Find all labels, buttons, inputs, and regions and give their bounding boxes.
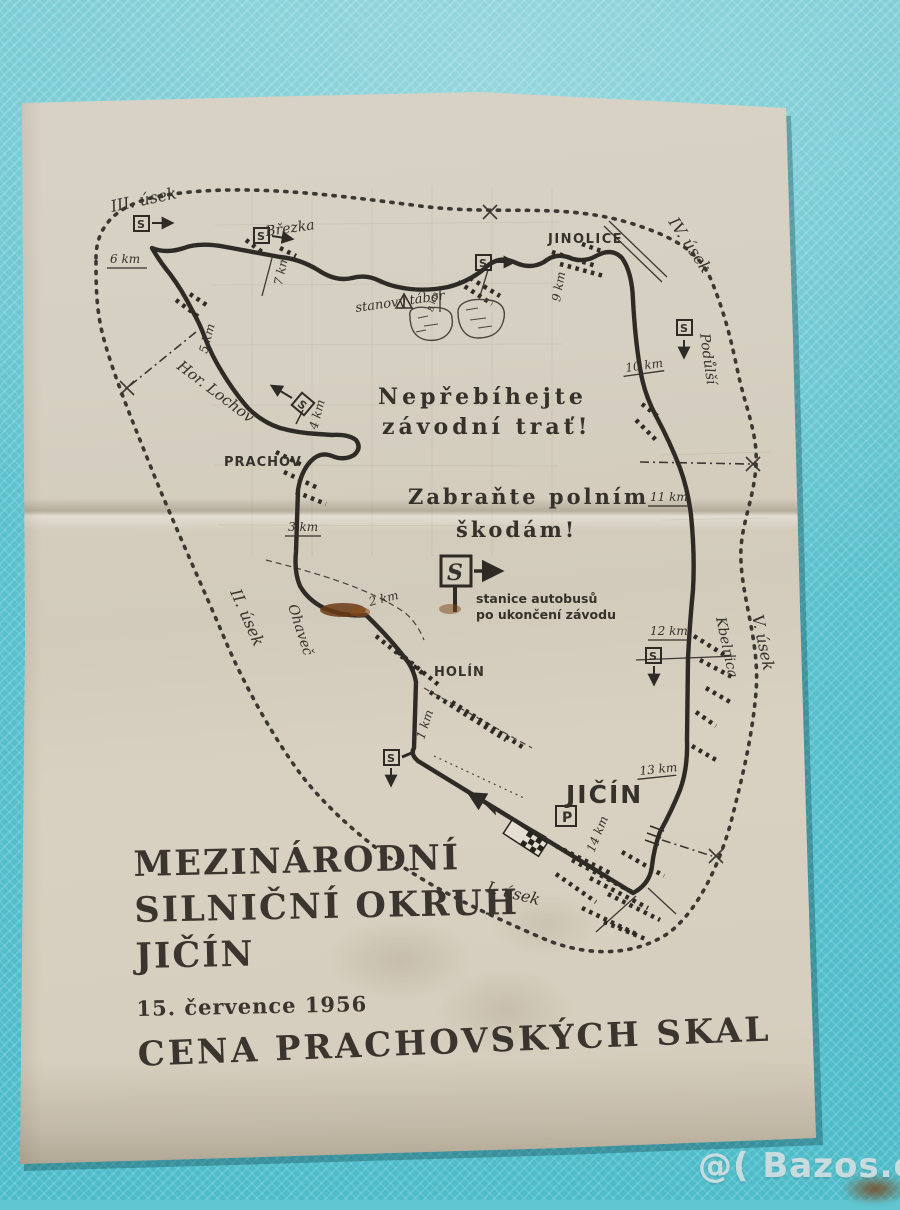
s-sign-podulsi: S: [677, 320, 692, 357]
label-jinolice: JINOLICE: [547, 232, 623, 247]
parking-sign-letter: P: [562, 810, 572, 826]
label-usek2: II. úsek: [226, 585, 268, 649]
warning1-line2: závodní trať!: [382, 414, 591, 440]
label-prachov: PRACHOV: [224, 455, 302, 470]
label-brezka: Březka: [263, 217, 315, 240]
bus-sign-letter: S: [447, 560, 463, 586]
svg-text:S: S: [387, 752, 395, 765]
parking-sign: P: [556, 806, 576, 826]
svg-text:4 km: 4 km: [306, 398, 328, 432]
svg-text:S: S: [479, 257, 487, 270]
watermark-text: @( Bazos.cz: [698, 1146, 900, 1186]
bus-caption-line2: po ukončení závodu: [476, 607, 616, 622]
label-usek3: III. úsek: [108, 183, 178, 216]
svg-text:S: S: [649, 650, 657, 663]
warning1-line1: Nepřebíhejte: [378, 384, 587, 410]
svg-text:7 km: 7 km: [271, 254, 291, 286]
svg-text:2 km: 2 km: [366, 588, 400, 609]
s-sign-1km: S: [384, 750, 399, 785]
s-sign-12km: S: [646, 648, 661, 684]
svg-text:12 km: 12 km: [650, 624, 688, 638]
svg-text:6 km: 6 km: [110, 252, 140, 266]
label-usek4: IV. úsek: [664, 213, 716, 277]
label-holin: HOLÍN: [434, 664, 485, 680]
svg-text:S: S: [257, 230, 265, 243]
svg-text:3 km: 3 km: [288, 520, 318, 534]
label-ohavec: Ohaveč: [284, 602, 316, 657]
bus-caption-line1: stanice autobusů: [476, 591, 597, 606]
label-jicin: JIČÍN: [564, 779, 643, 809]
svg-text:11 km: 11 km: [650, 490, 688, 504]
event-title-block: MEZINÁRODNÍ SILNIČNÍ OKRUH JIČÍN 15. čer…: [133, 829, 778, 1075]
s-sign-prachov: S: [272, 386, 314, 415]
svg-text:S: S: [137, 218, 145, 231]
warning2-line2: škodám!: [456, 517, 577, 542]
label-hor-lochov: Hor. Lochov: [173, 356, 258, 426]
fold-stains: [320, 603, 461, 617]
label-usek5: V. úsek: [748, 613, 778, 672]
s-sign-top: S: [476, 255, 514, 270]
s-sign-6km: S: [134, 216, 172, 231]
warning2-line1: Zabraňte polním: [408, 484, 649, 509]
photo-of-race-map: { "colors": { "background": "#5fc6d2", "…: [0, 0, 900, 1200]
label-podulsi: Podůlší: [696, 331, 720, 387]
svg-text:S: S: [680, 322, 688, 335]
